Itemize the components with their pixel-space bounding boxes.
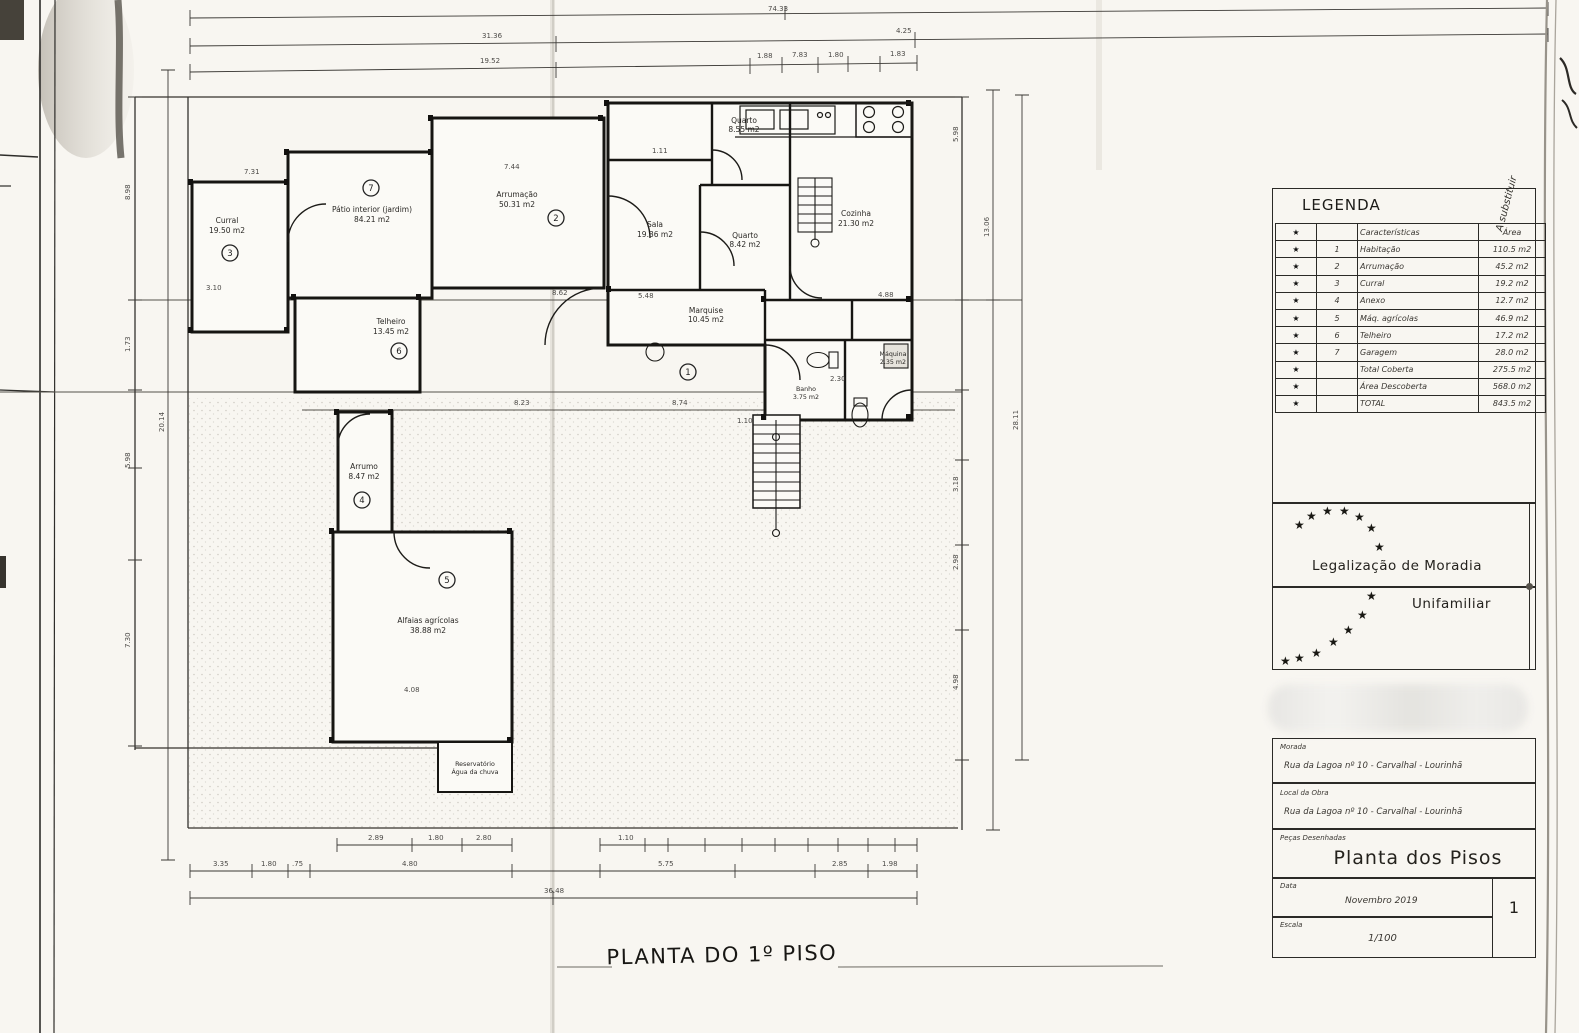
legend-row: ★ Área Descoberta 568.0 m2 [1276,378,1546,395]
pecas-value: Planta dos Pisos [1308,847,1528,869]
room-number: 5 [444,576,449,586]
room-area: 8.47 m2 [348,472,379,481]
morada-value: Rua da Lagoa nº 10 - Carvalhal - Lourinh… [1284,761,1462,771]
legend-num: 2 [1317,258,1358,275]
dim-label: 2.30 [830,375,846,383]
legend-row: ★ 5 Máq. agrícolas 46.9 m2 [1276,309,1546,326]
room-name: Curral [216,216,239,225]
dim-label: 13.06 [983,216,991,237]
legend-row: ★ 6 Telheiro 17.2 m2 [1276,327,1546,344]
legend-num [1317,395,1358,412]
legend-star: ★ [1276,258,1317,275]
room-name: Máquina [880,350,907,358]
legend-name: Características [1358,224,1479,241]
room-name: Reservatório [455,760,495,768]
legend-star: ★ [1276,344,1317,361]
star-icon: ★ [1366,589,1377,603]
dim-label: 5.98 [952,126,960,142]
legend-name: Anexo [1358,292,1479,309]
room-area: 2.35 m2 [880,359,906,366]
legend-star: ★ [1276,275,1317,292]
star-icon: ★ [1294,518,1305,532]
dim-label: 3.18 [952,476,960,492]
legend-num: 4 [1317,292,1358,309]
escala-label: Escala [1280,921,1302,929]
room-number: 3 [227,249,232,259]
legend-area: 45.2 m2 [1479,258,1546,275]
legend-star: ★ [1276,395,1317,412]
legend-num [1317,378,1358,395]
star-icon: ★ [1374,540,1385,554]
data-value: Novembro 2019 [1345,896,1418,906]
star-icon: ★ [1339,504,1350,518]
legend-area: 12.7 m2 [1479,292,1546,309]
legend-row: ★ 4 Anexo 12.7 m2 [1276,292,1546,309]
room-area: 13.45 m2 [373,327,409,336]
legend-num: 5 [1317,309,1358,326]
star-icon: ★ [1294,651,1305,665]
room-name: Quarto [732,231,758,240]
dim-label: 3.10 [206,284,222,292]
legend-area: 275.5 m2 [1479,361,1546,378]
legend-header-row: ★ Características Área [1276,224,1546,241]
star-icon: ★ [1343,623,1354,637]
room-area: 19.36 m2 [637,230,673,239]
legend-area: 568.0 m2 [1479,378,1546,395]
legend-area: 19.2 m2 [1479,275,1546,292]
dim-label: 4.80 [402,860,418,868]
floor-title-group: PLANTA DO 1º PISO [557,941,1163,970]
dim-label: 8.74 [672,399,688,407]
legend-row: ★ 7 Garagem 28.0 m2 [1276,344,1546,361]
room-area: 38.88 m2 [410,626,446,635]
dim-label: 3.35 [213,860,229,868]
room-area: 50.31 m2 [499,200,535,209]
scanned-floor-plan-sheet: 74.33 31.36 4.25 19.52 1.88 7.83 1.80 1.… [0,0,1579,1033]
legend-star: ★ [1276,224,1317,241]
star-icon: ★ [1280,654,1291,668]
room-name: Arrumo [350,462,378,471]
dim-label: 7.44 [504,163,520,171]
plan-title: PLANTA DO 1º PISO [606,941,837,970]
dim-label: 5.48 [638,292,654,300]
legend-area: Área [1479,224,1546,241]
legend-name: Habitação [1358,241,1479,258]
room-name: Sala [647,220,663,229]
legend-star: ★ [1276,327,1317,344]
legend-row: ★ TOTAL 843.5 m2 [1276,395,1546,412]
dim-label: 1.73 [124,336,132,352]
legend-name: Total Coberta [1358,361,1479,378]
scan-artifacts-left [0,0,134,1033]
legend-star: ★ [1276,378,1317,395]
stamp-line2: Unifamiliar [1412,596,1491,612]
legend-area: 28.0 m2 [1479,344,1546,361]
dim-label: 4.98 [952,674,960,690]
dim-label: 8.23 [514,399,530,407]
local-obra-label: Local da Obra [1280,789,1329,797]
legend-row: ★ Total Coberta 275.5 m2 [1276,361,1546,378]
dim-label: 20.14 [158,411,166,432]
room-name: Quarto [731,116,757,125]
dim-label: 1.98 [882,860,898,868]
legend-area: 110.5 m2 [1479,241,1546,258]
sheet-number: 1 [1492,898,1536,917]
dim-label: 2.80 [476,834,492,842]
stamp-line1: Legalização de Moradia [1312,558,1482,574]
dim-label: 19.52 [480,57,500,65]
star-icon: ★ [1357,608,1368,622]
legend-num: 1 [1317,241,1358,258]
legend-row: ★ 1 Habitação 110.5 m2 [1276,241,1546,258]
dim-label: 1.88 [757,52,773,60]
legend-name: TOTAL [1358,395,1479,412]
dim-label: 2.85 [832,860,848,868]
star-icon: ★ [1366,521,1377,535]
dim-label: 1.80 [828,51,844,59]
stamp-dot [1526,583,1533,590]
legend-num: 6 [1317,327,1358,344]
room-area: 84.21 m2 [354,215,390,224]
room-number: 1 [685,368,690,378]
legend-name: Arrumação [1358,258,1479,275]
legend-num: 3 [1317,275,1358,292]
dim-label: 2.98 [952,554,960,570]
room-name: Telheiro [376,317,406,326]
legend-star: ★ [1276,361,1317,378]
room-name: Marquise [689,306,724,315]
dim-label: 7.30 [124,632,132,648]
dim-label: 7.83 [792,51,808,59]
room-area: 19.50 m2 [209,226,245,235]
room-area: 8.55 m2 [728,125,759,134]
legend-area: 17.2 m2 [1479,327,1546,344]
room-name: Cozinha [841,209,871,218]
dim-label: 8.62 [552,289,568,297]
legend-name: Garagem [1358,344,1479,361]
legend-name: Área Descoberta [1358,378,1479,395]
legend-name: Curral [1358,275,1479,292]
dim-label: 4.88 [878,291,894,299]
escala-value: 1/100 [1368,933,1397,944]
room-number: 6 [396,347,401,357]
pecas-label: Peças Desenhadas [1280,834,1346,842]
star-icon: ★ [1354,510,1365,524]
legend-star: ★ [1276,309,1317,326]
dim-label: 5.98 [124,452,132,468]
dim-label: 2.89 [368,834,384,842]
dim-label: 7.31 [244,168,260,176]
legend-num [1317,361,1358,378]
room-number: 7 [368,184,373,194]
room-area: 8.42 m2 [729,240,760,249]
legend-title: LEGENDA [1302,196,1381,214]
legend-row: ★ 2 Arrumação 45.2 m2 [1276,258,1546,275]
room-name: Arrumação [496,190,538,199]
room-area: 21.30 m2 [838,219,874,228]
legend-area: 46.9 m2 [1479,309,1546,326]
dim-label: 1.83 [890,50,906,58]
dim-label: 1.80 [428,834,444,842]
star-icon: ★ [1328,635,1339,649]
dim-label: 36.48 [544,887,564,895]
dim-label: 1.10 [618,834,634,842]
room-name: Pátio interior (jardim) [332,205,412,214]
dim-label: 4.25 [896,27,912,35]
legend-name: Telheiro [1358,327,1479,344]
dim-label: 5.75 [658,860,674,868]
dim-label: 1.80 [261,860,277,868]
room-name: Alfaias agrícolas [397,616,458,625]
legend-name: Máq. agrícolas [1358,309,1479,326]
legend-star: ★ [1276,292,1317,309]
room-number: 4 [359,496,364,506]
legend-num [1317,224,1358,241]
star-icon: ★ [1322,504,1333,518]
room-area: Água da chuva [451,767,498,776]
room-number: 2 [553,214,558,224]
legend-row: ★ 3 Curral 19.2 m2 [1276,275,1546,292]
dim-label: 4.08 [404,686,420,694]
dim-label: 28.11 [1012,410,1020,430]
dim-label: 74.33 [768,5,788,13]
room-area: 3.75 m2 [793,394,819,401]
dim-label: 1.10 [737,417,753,425]
dim-label: .75 [292,860,303,868]
page-curl [1545,0,1577,1033]
room-area: 10.45 m2 [688,315,724,324]
redacted-name-strip [1268,684,1528,732]
ground-texture [188,398,958,828]
dim-label: 1.11 [652,147,668,155]
legend-star: ★ [1276,241,1317,258]
star-icon: ★ [1311,646,1322,660]
data-label: Data [1280,882,1297,890]
star-icon: ★ [1306,509,1317,523]
local-obra-value: Rua da Lagoa nº 10 - Carvalhal - Lourinh… [1284,807,1462,817]
sheet-number-box [1492,878,1536,958]
legend-num: 7 [1317,344,1358,361]
legend-table: ★ Características Área ★ 1 Habitação 110… [1275,223,1546,413]
room-name: Banho [796,386,816,393]
legend-area: 843.5 m2 [1479,395,1546,412]
dim-label: 31.36 [482,32,503,40]
dim-label: 8.98 [124,184,132,200]
morada-label: Morada [1280,743,1306,751]
